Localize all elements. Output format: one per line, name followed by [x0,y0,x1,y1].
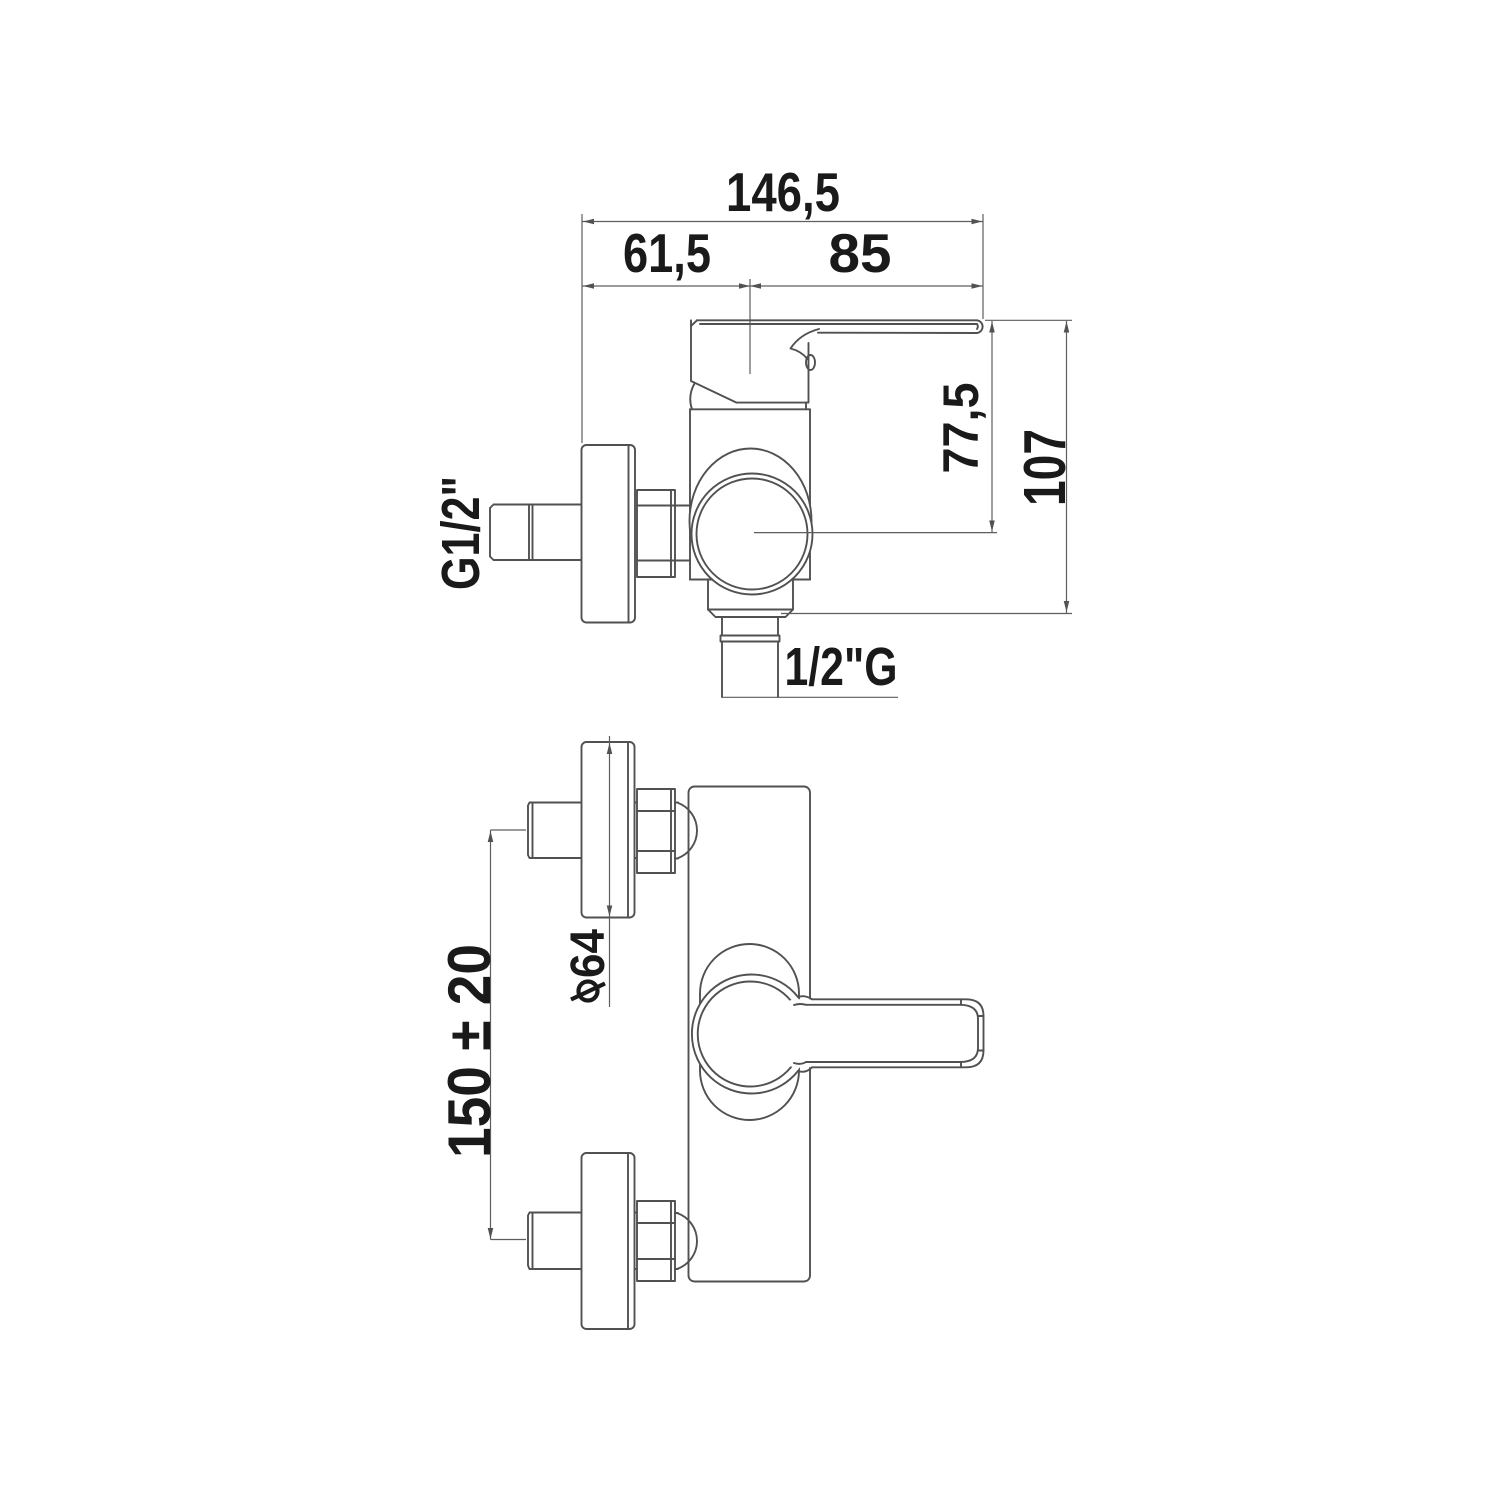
svg-text:146,5: 146,5 [726,161,840,223]
svg-text:77,5: 77,5 [933,383,989,474]
svg-text:64: 64 [562,929,615,978]
svg-text:61,5: 61,5 [623,222,711,284]
svg-text:85: 85 [829,222,892,284]
svg-text:107: 107 [1012,429,1078,506]
svg-text:G1/2": G1/2" [431,476,491,590]
svg-text:150 ± 20: 150 ± 20 [436,944,503,1158]
svg-text:1/2"G: 1/2"G [785,637,898,697]
